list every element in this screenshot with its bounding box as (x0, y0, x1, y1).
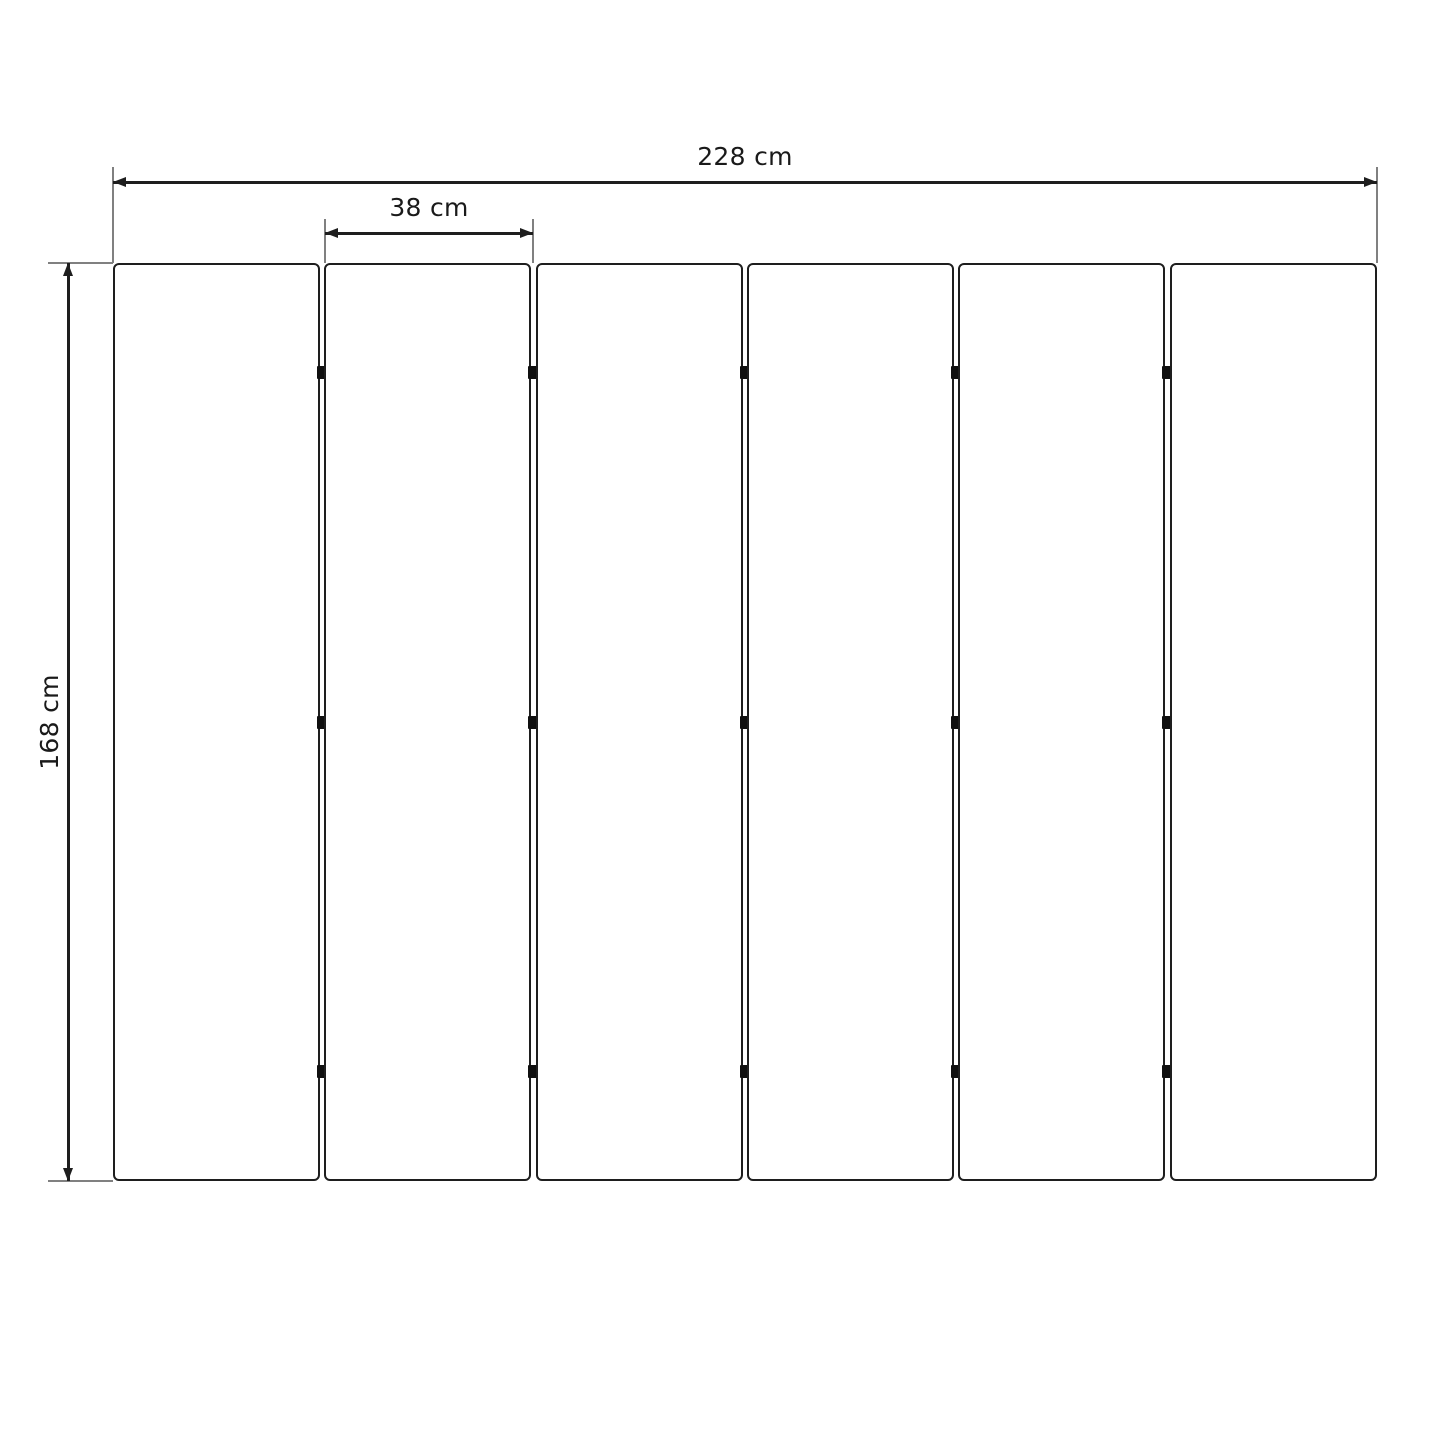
extension-line-top (48, 262, 113, 264)
dimension-line (113, 181, 1377, 184)
extension-line-left (324, 219, 326, 263)
panel-6 (1170, 263, 1377, 1181)
arrowhead-left-icon (113, 177, 126, 187)
panel-4 (747, 263, 954, 1181)
dimension-panel-width-label: 38 cm (389, 193, 468, 223)
panel-1 (113, 263, 320, 1181)
panel-2 (324, 263, 531, 1181)
panel-3 (536, 263, 743, 1181)
arrowhead-up-icon (63, 263, 73, 276)
dimension-line (67, 263, 70, 1181)
arrowhead-left-icon (325, 228, 338, 238)
arrowhead-down-icon (63, 1168, 73, 1181)
dimension-height-label: 168 cm (35, 674, 65, 770)
extension-line-right (532, 219, 534, 263)
dimension-line (325, 232, 533, 235)
arrowhead-right-icon (520, 228, 533, 238)
arrowhead-right-icon (1364, 177, 1377, 187)
extension-line-bottom (48, 1180, 113, 1182)
dimension-total-width-label: 228 cm (697, 142, 793, 172)
panel-5 (958, 263, 1165, 1181)
diagram-canvas: 228 cm 38 cm 168 cm (0, 0, 1445, 1445)
